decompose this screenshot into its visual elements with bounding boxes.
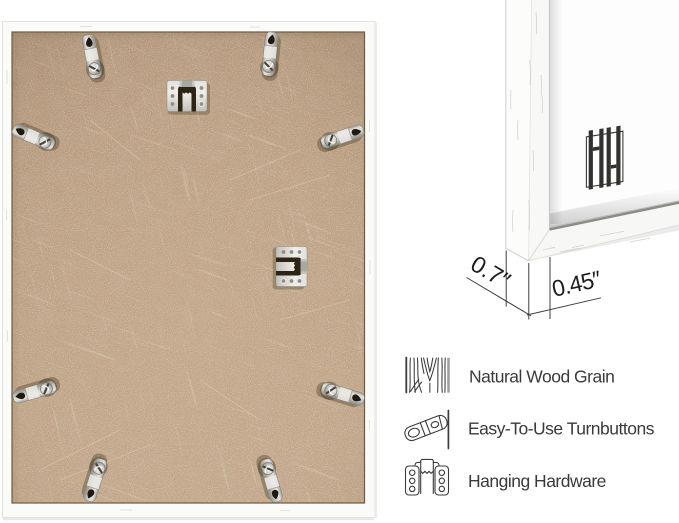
svg-text:0.45″: 0.45″ [549,265,603,301]
svg-text:Easy-To-Use Turnbuttons: Easy-To-Use Turnbuttons [468,419,655,439]
svg-text:0.7″: 0.7″ [466,250,515,293]
svg-text:Hanging Hardware: Hanging Hardware [468,471,606,491]
svg-text:Natural Wood Grain: Natural Wood Grain [469,367,614,387]
